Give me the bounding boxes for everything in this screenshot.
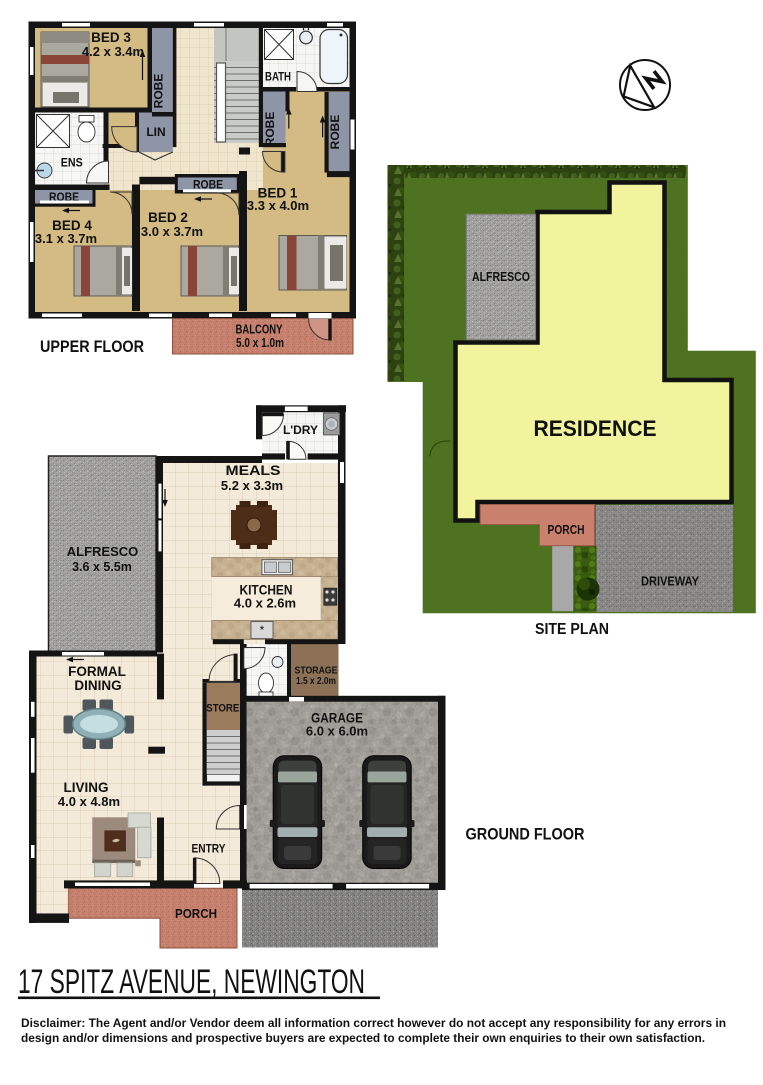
svg-text:ENS: ENS [61, 156, 83, 170]
svg-text:3.1 x 3.7m: 3.1 x 3.7m [35, 231, 97, 246]
svg-text:4.0 x 2.6m: 4.0 x 2.6m [234, 596, 296, 611]
svg-text:GROUND FLOOR: GROUND FLOOR [466, 825, 585, 844]
svg-text:BED 3: BED 3 [91, 30, 131, 45]
svg-text:STORE: STORE [206, 703, 239, 715]
svg-text:LIVING: LIVING [63, 780, 108, 795]
svg-text:design and/or dimensions and p: design and/or dimensions and prospective… [21, 1031, 705, 1045]
svg-text:PORCH: PORCH [175, 906, 217, 921]
svg-text:ALFRESCO: ALFRESCO [472, 270, 530, 284]
svg-text:ALFRESCO: ALFRESCO [67, 544, 139, 559]
svg-text:PORCH: PORCH [548, 523, 585, 537]
svg-text:L'DRY: L'DRY [283, 423, 318, 437]
svg-text:5.0 x 1.0m: 5.0 x 1.0m [236, 336, 284, 350]
svg-text:STORAGE: STORAGE [295, 665, 338, 677]
svg-text:UPPER FLOOR: UPPER FLOOR [40, 337, 144, 356]
svg-text:ENTRY: ENTRY [192, 842, 226, 856]
svg-text:1.5 x 2.0m: 1.5 x 2.0m [296, 676, 336, 687]
svg-text:MEALS: MEALS [226, 463, 281, 478]
svg-text:ROBE: ROBE [152, 74, 166, 109]
svg-text:ROBE: ROBE [263, 112, 277, 147]
svg-text:SITE PLAN: SITE PLAN [535, 621, 609, 638]
svg-text:DRIVEWAY: DRIVEWAY [641, 575, 700, 589]
svg-text:3.3 x 4.0m: 3.3 x 4.0m [247, 198, 309, 213]
svg-text:3.6 x 5.5m: 3.6 x 5.5m [72, 560, 132, 574]
svg-text:4.2 x 3.4m: 4.2 x 3.4m [82, 44, 144, 59]
svg-text:4.0 x 4.8m: 4.0 x 4.8m [58, 794, 120, 809]
svg-text:RESIDENCE: RESIDENCE [534, 416, 657, 441]
svg-text:FORMAL: FORMAL [68, 664, 126, 679]
svg-text:5.2 x 3.3m: 5.2 x 3.3m [221, 478, 283, 493]
svg-text:ROBE: ROBE [328, 115, 342, 150]
svg-text:17 SPITZ AVENUE, NEWINGTON: 17 SPITZ AVENUE, NEWINGTON [18, 963, 365, 1001]
svg-text:BED 2: BED 2 [148, 210, 188, 225]
svg-text:6.0 x 6.0m: 6.0 x 6.0m [306, 724, 368, 739]
svg-text:BATH: BATH [265, 70, 291, 84]
svg-text:DINING: DINING [74, 678, 121, 693]
svg-text:BALCONY: BALCONY [236, 323, 283, 337]
svg-text:3.0 x 3.7m: 3.0 x 3.7m [141, 224, 203, 239]
svg-text:LIN: LIN [146, 125, 165, 139]
svg-text:Disclaimer: The Agent and/or V: Disclaimer: The Agent and/or Vendor deem… [21, 1016, 726, 1030]
svg-text:*: * [260, 623, 265, 637]
